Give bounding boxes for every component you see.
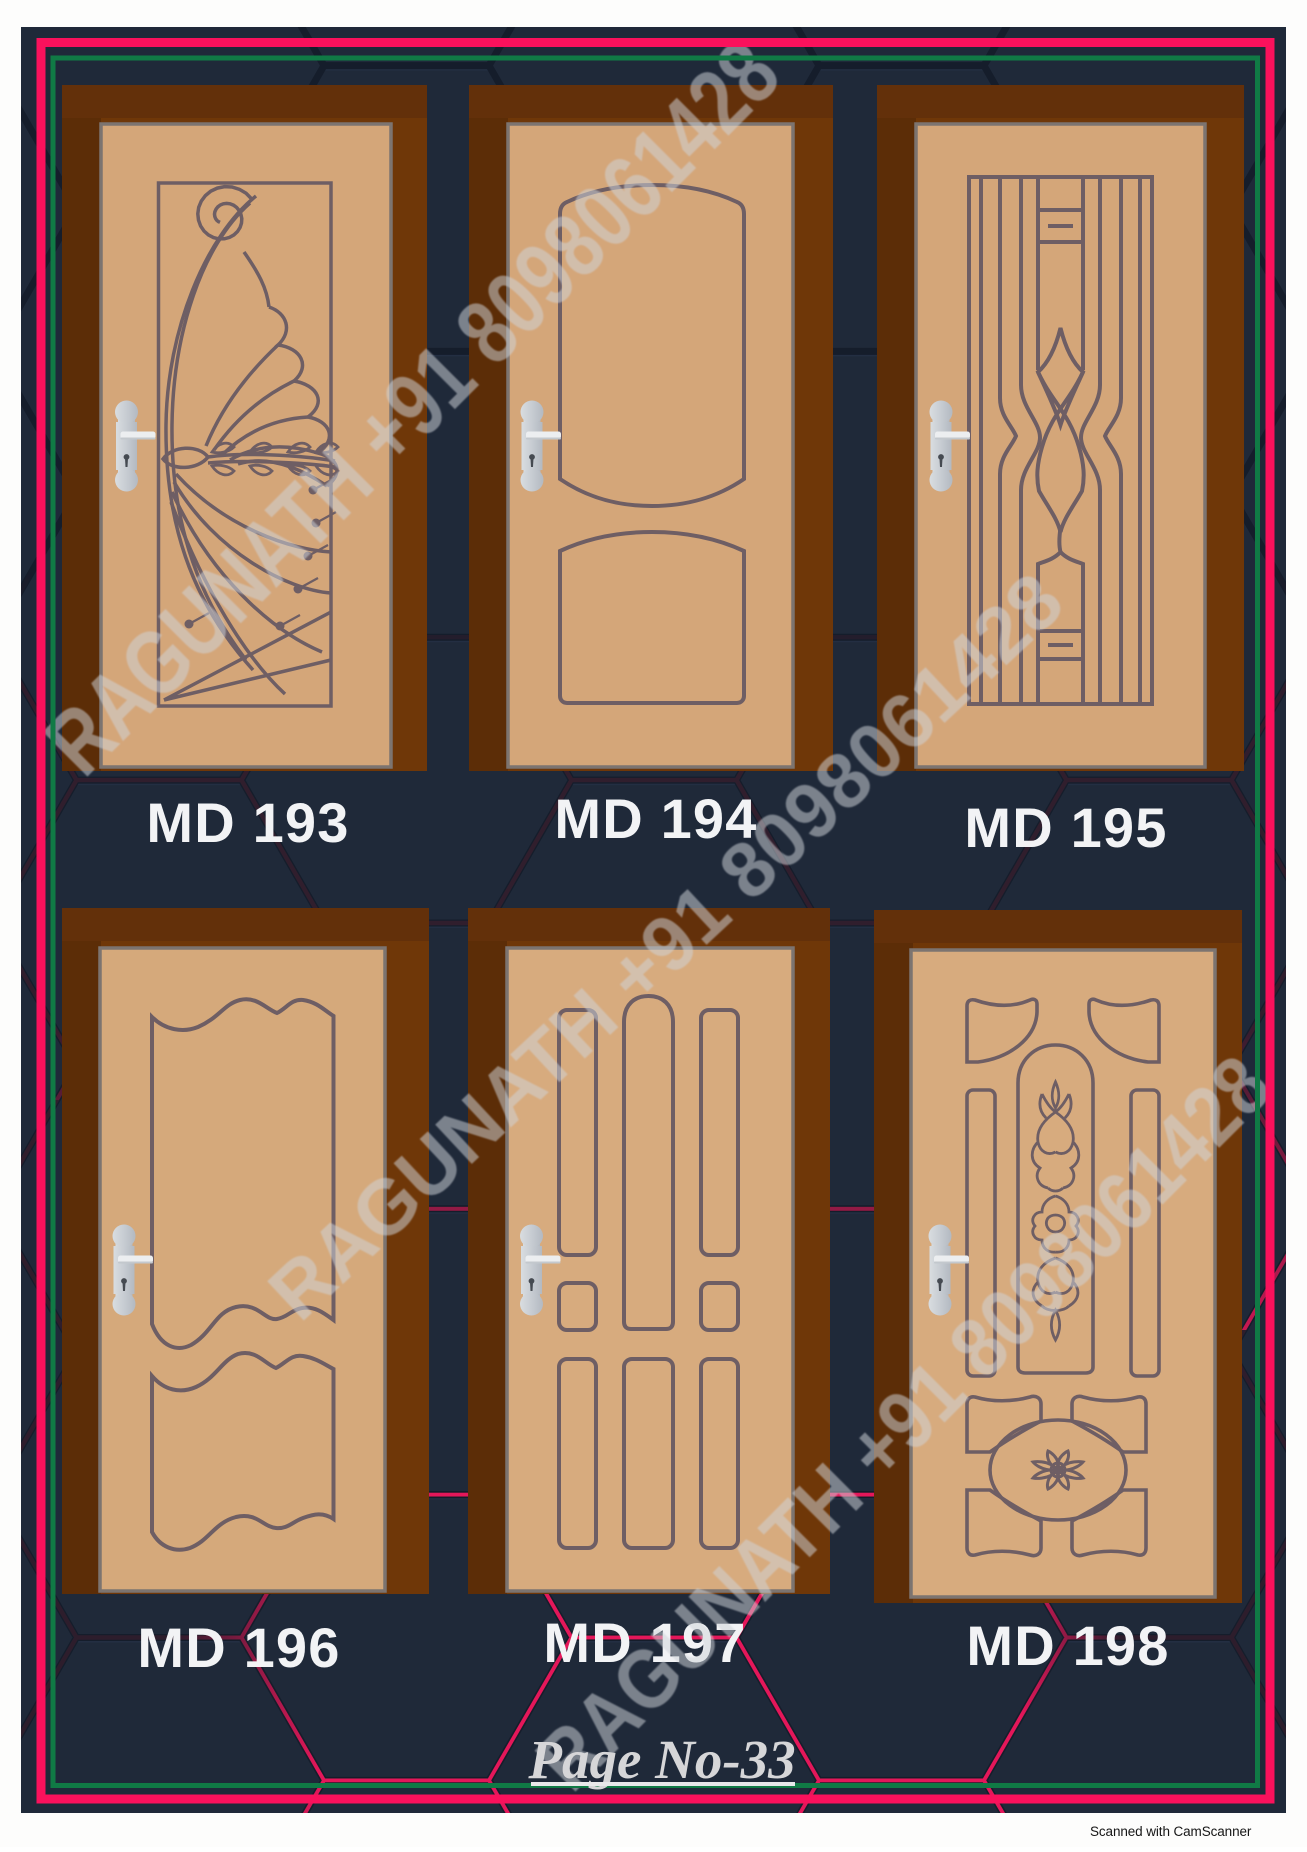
svg-text:MD 196: MD 196 <box>137 1616 340 1679</box>
svg-text:Scanned with CamScanner: Scanned with CamScanner <box>1090 1824 1252 1839</box>
svg-text:MD 198: MD 198 <box>966 1614 1169 1677</box>
svg-text:MD 195: MD 195 <box>964 796 1167 859</box>
svg-text:Page No-33: Page No-33 <box>527 1729 795 1790</box>
svg-text:MD 193: MD 193 <box>146 791 349 854</box>
